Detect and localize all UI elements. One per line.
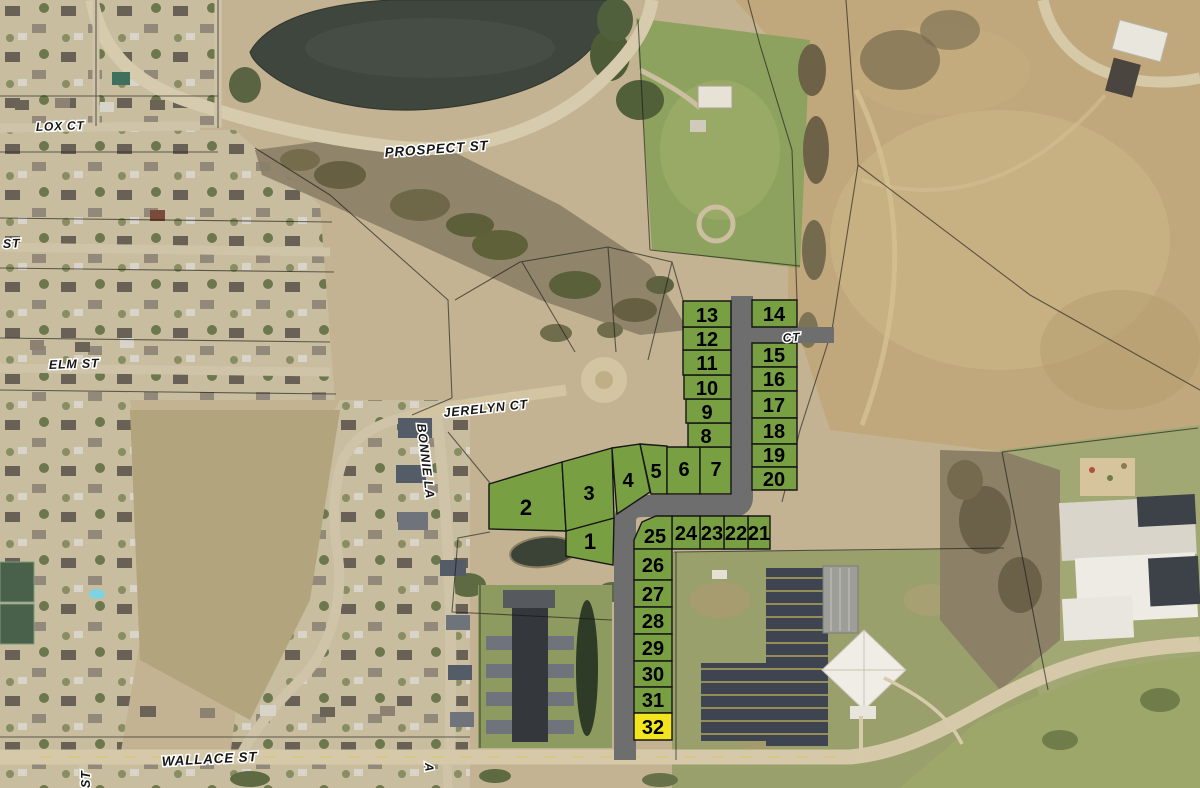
lox-court-road — [0, 126, 200, 128]
lot-9-number: 9 — [701, 402, 712, 424]
lot-25-number: 25 — [644, 526, 666, 548]
lot-6-number: 6 — [678, 459, 689, 481]
lot-30-number: 30 — [642, 664, 664, 686]
lot-7-number: 7 — [710, 459, 721, 481]
street-label-partial-a: A — [422, 761, 437, 772]
aerial-photo-base — [0, 0, 1200, 788]
lot-27-number: 27 — [642, 584, 664, 606]
lot-2-number: 2 — [520, 495, 532, 520]
swimming-pool — [89, 589, 105, 599]
apartment-complex — [478, 585, 612, 748]
lot-12-number: 12 — [696, 329, 718, 351]
lot-19-number: 19 — [763, 445, 785, 467]
lot-30[interactable]: 30 — [634, 661, 672, 687]
lot-4-number: 4 — [622, 470, 634, 492]
lot-3-number: 3 — [583, 483, 594, 505]
lot-17[interactable]: 17 — [752, 391, 797, 418]
lot-5-number: 5 — [650, 461, 661, 483]
street-label-lox-ct: LOX CT — [36, 118, 86, 134]
lot-23[interactable]: 23 — [700, 516, 724, 549]
lot-15[interactable]: 15 — [752, 343, 797, 367]
lot-28[interactable]: 28 — [634, 607, 672, 634]
street-label-partial-ct: CT — [782, 330, 801, 345]
lot-18[interactable]: 18 — [752, 418, 797, 444]
lot-16[interactable]: 16 — [752, 367, 797, 391]
lot-24[interactable]: 24 — [672, 516, 700, 549]
lot-26[interactable]: 26 — [634, 549, 672, 580]
lot-13-number: 13 — [696, 305, 718, 327]
lot-19[interactable]: 19 — [752, 444, 797, 467]
lot-18-number: 18 — [763, 421, 785, 443]
street-label-partial-st-vertical: ST — [79, 770, 93, 788]
tree-hedge — [576, 600, 598, 736]
lot-14[interactable]: 14 — [752, 300, 797, 327]
mid-street-road — [0, 247, 330, 252]
lot-28-number: 28 — [642, 611, 664, 633]
lot-24-number: 24 — [675, 523, 698, 545]
lot-12[interactable]: 12 — [683, 327, 731, 351]
lot-8-number: 8 — [700, 426, 711, 448]
lot-3[interactable]: 3 — [562, 448, 614, 531]
lot-20-number: 20 — [763, 469, 785, 491]
lot-27[interactable]: 27 — [634, 580, 672, 607]
lot-6[interactable]: 6 — [667, 447, 700, 494]
lot-15-number: 15 — [763, 345, 785, 367]
street-label-partial-st: ST — [3, 236, 22, 251]
lot-32-number: 32 — [642, 717, 664, 739]
lot-29-number: 29 — [642, 638, 664, 660]
lot-14-number: 14 — [763, 304, 786, 326]
lot-23-number: 23 — [701, 523, 723, 545]
lot-31-number: 31 — [642, 690, 664, 712]
estate-house — [698, 86, 732, 108]
lot-32-highlighted[interactable]: 32 — [634, 713, 672, 740]
estate-grounds — [636, 18, 810, 268]
plat-map-aerial: 1 2 3 4 5 6 7 8 9 10 11 12 13 14 15 16 1… — [0, 0, 1200, 788]
lot-29[interactable]: 29 — [634, 634, 672, 661]
street-label-elm-st: ELM ST — [49, 356, 101, 372]
lot-10-number: 10 — [696, 378, 718, 400]
lot-16-number: 16 — [763, 369, 785, 391]
lot-11-number: 11 — [696, 353, 717, 375]
lot-17-number: 17 — [763, 395, 785, 417]
lot-7[interactable]: 7 — [700, 447, 731, 494]
lot-22-number: 22 — [725, 523, 747, 545]
lot-8[interactable]: 8 — [688, 423, 731, 448]
lot-10[interactable]: 10 — [684, 375, 731, 400]
lot-9[interactable]: 9 — [686, 399, 731, 424]
lot-26-number: 26 — [642, 555, 664, 577]
lot-21-number: 21 — [748, 523, 770, 545]
lot-20[interactable]: 20 — [752, 467, 797, 491]
lot-11[interactable]: 11 — [683, 350, 731, 375]
lot-1-number: 1 — [584, 529, 596, 554]
lot-13[interactable]: 13 — [683, 301, 731, 327]
lot-22[interactable]: 22 — [724, 516, 748, 549]
lot-21[interactable]: 21 — [748, 516, 770, 549]
lot-31[interactable]: 31 — [634, 687, 672, 713]
